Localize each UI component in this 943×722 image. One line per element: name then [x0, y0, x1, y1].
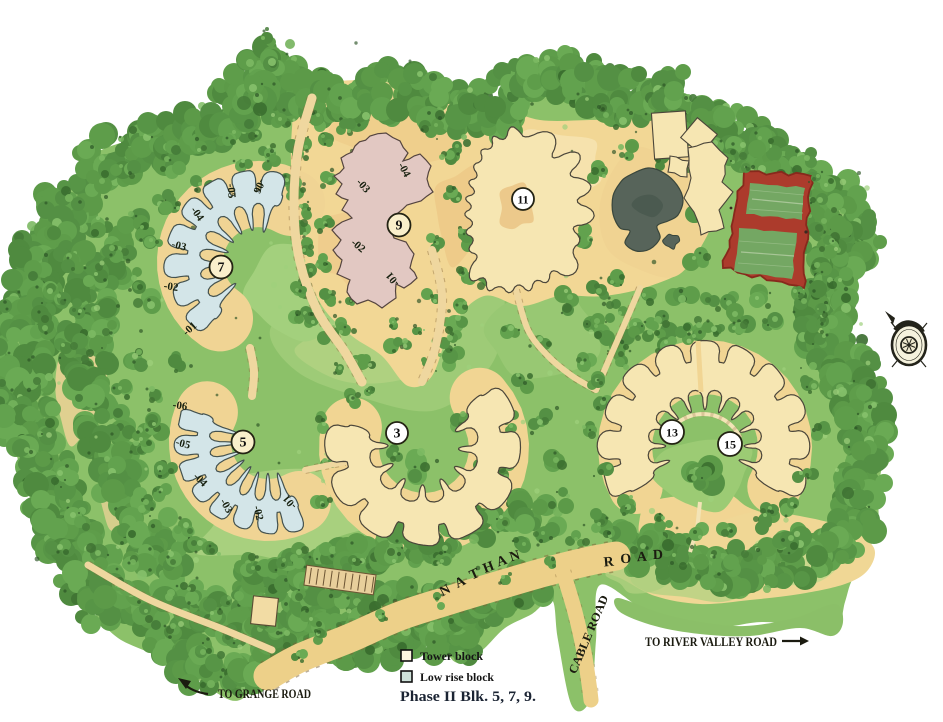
svg-text:9: 9: [396, 219, 403, 234]
svg-text:3: 3: [394, 427, 401, 442]
svg-text:A: A: [636, 550, 648, 566]
svg-text:-06: -06: [172, 399, 189, 413]
svg-text:O: O: [620, 552, 632, 568]
svg-text:13: 13: [666, 426, 678, 440]
svg-text:Low rise block: Low rise block: [420, 670, 494, 684]
svg-text:7: 7: [218, 261, 225, 276]
svg-text:TO GRANGE ROAD: TO GRANGE ROAD: [218, 687, 311, 701]
svg-text:Tower block: Tower block: [420, 649, 483, 663]
svg-text:11: 11: [517, 193, 528, 207]
svg-text:-05: -05: [224, 183, 237, 199]
svg-text:-02: -02: [163, 280, 180, 294]
svg-text:TO RIVER VALLEY ROAD: TO RIVER VALLEY ROAD: [645, 635, 777, 649]
svg-text:15: 15: [724, 438, 736, 452]
svg-text:Phase II Blk. 5, 7, 9.: Phase II Blk. 5, 7, 9.: [400, 689, 536, 705]
svg-text:D: D: [653, 548, 664, 563]
svg-text:5: 5: [240, 436, 247, 451]
